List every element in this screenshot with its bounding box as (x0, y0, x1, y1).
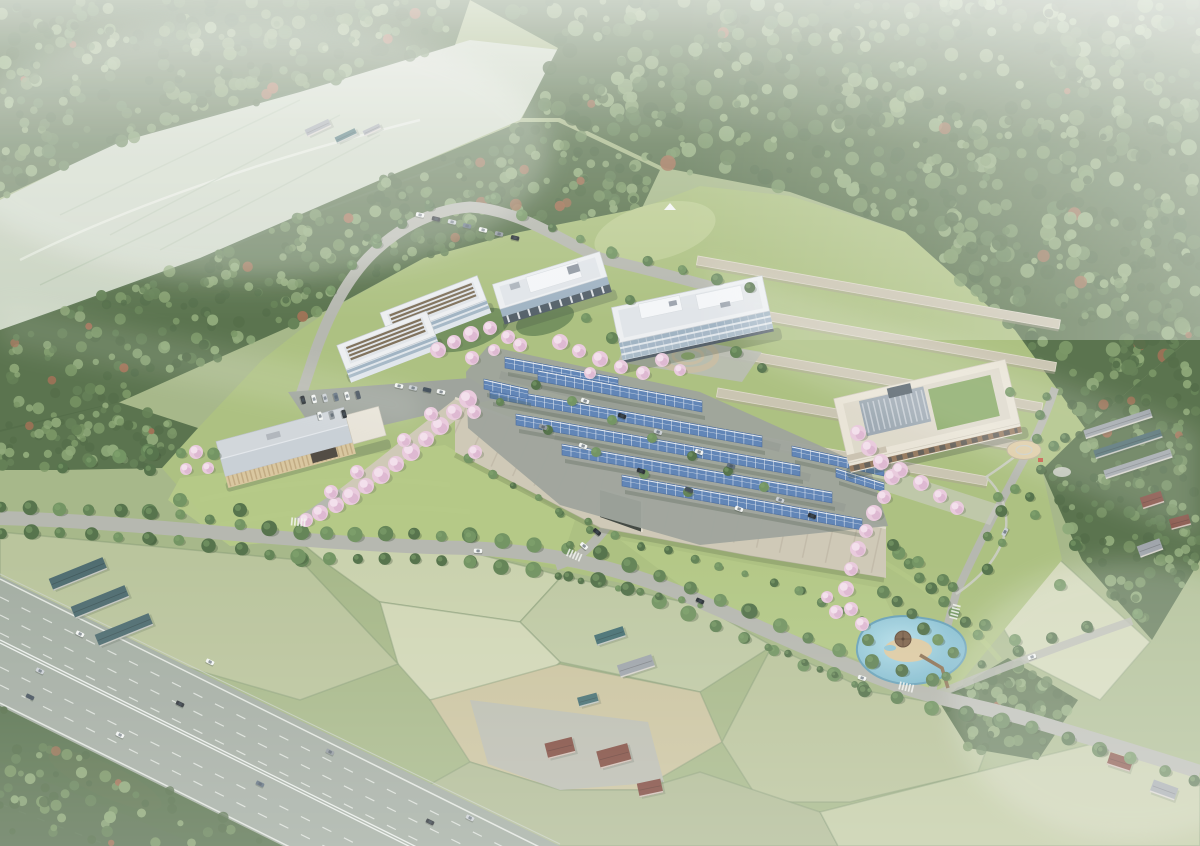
haze-overlays (0, 0, 1200, 846)
aerial-campus-render (0, 0, 1200, 846)
overall-tint (0, 0, 1200, 846)
screenshot-stage (0, 0, 1200, 846)
